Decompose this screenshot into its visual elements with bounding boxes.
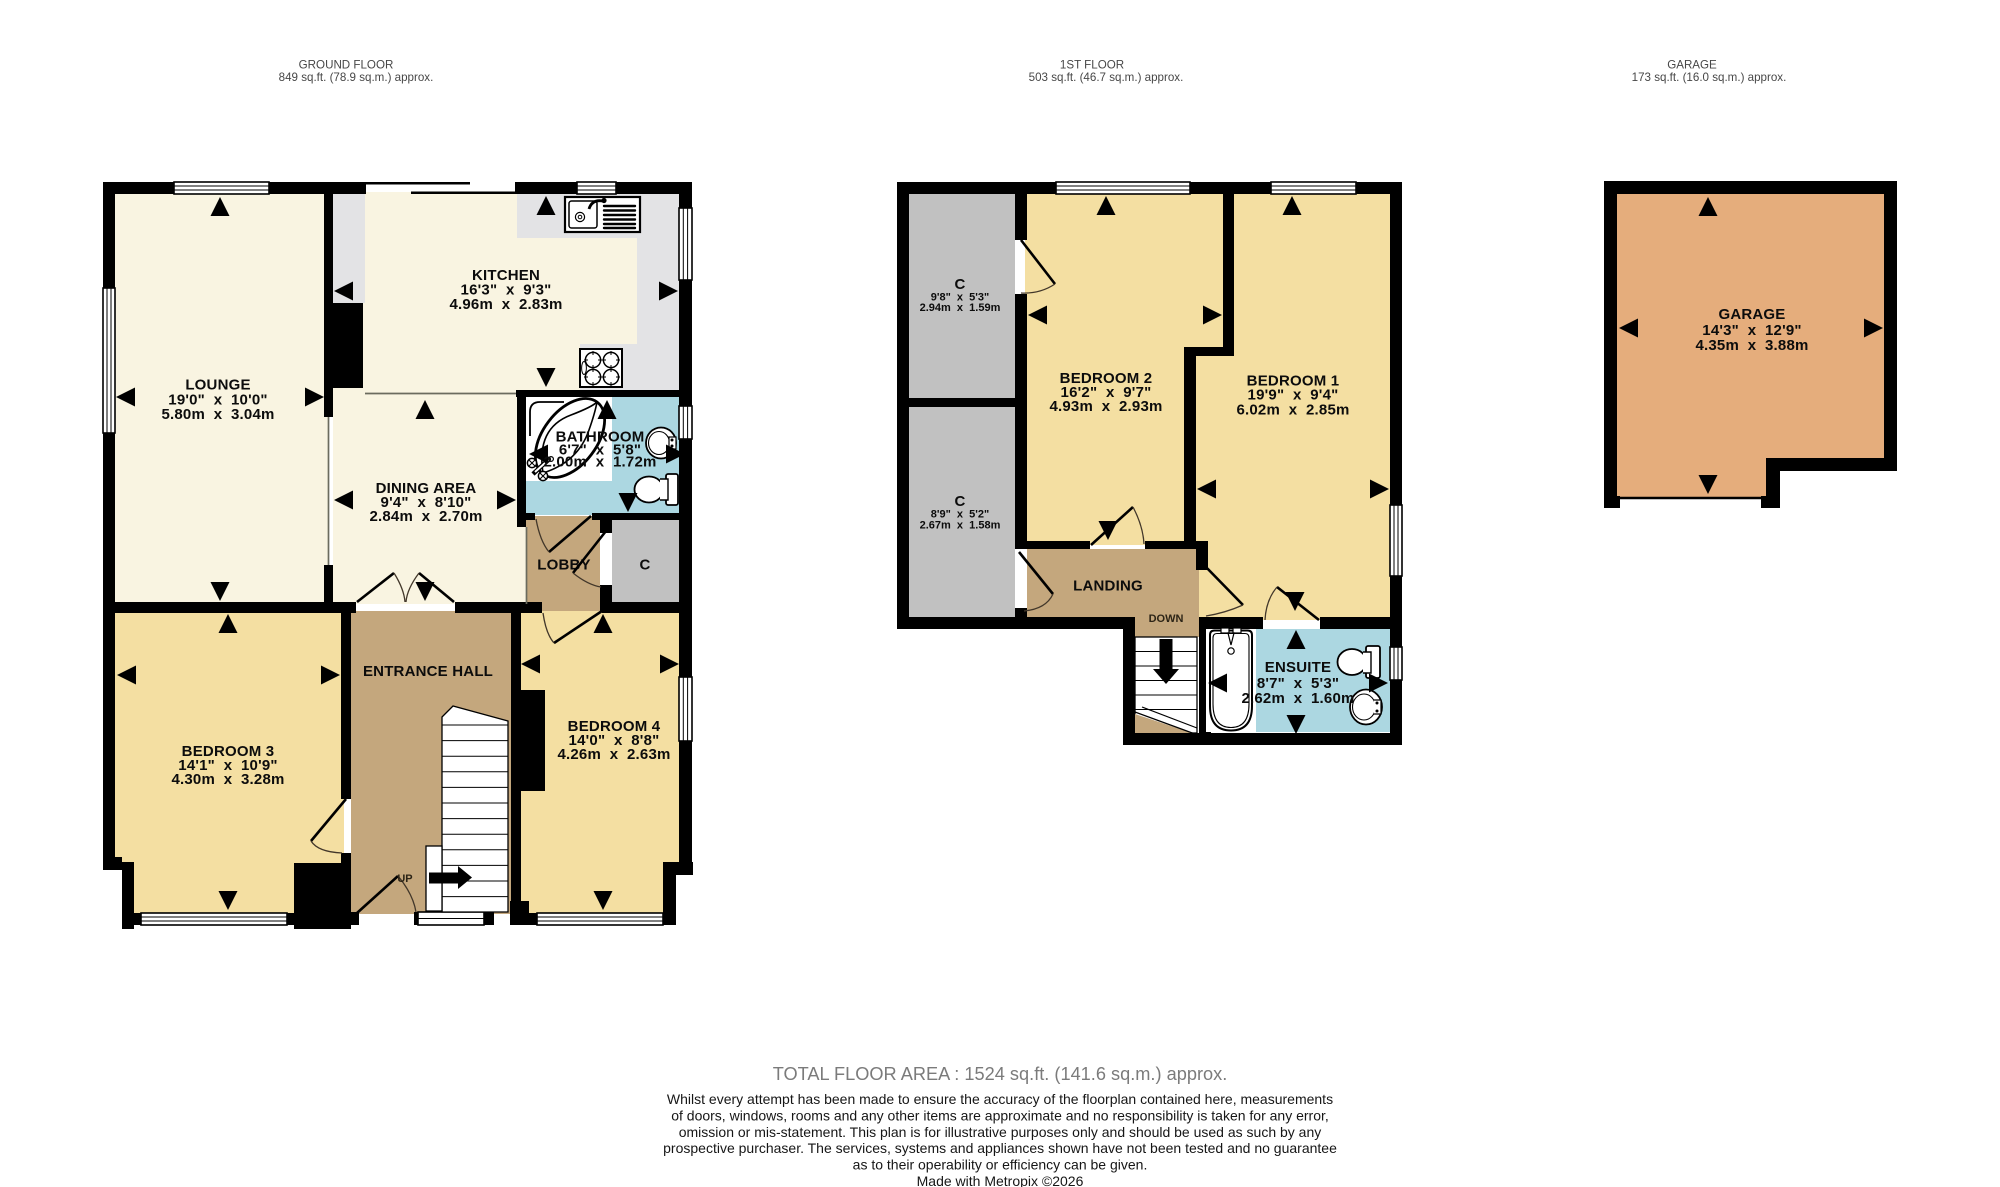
svg-text:Made with Metropix ©2026: Made with Metropix ©2026 xyxy=(917,1173,1084,1187)
svg-text:LANDING: LANDING xyxy=(1073,578,1143,595)
svg-text:prospective purchaser. The ser: prospective purchaser. The services, sys… xyxy=(663,1140,1337,1156)
svg-text:ENSUITE: ENSUITE xyxy=(1265,659,1331,676)
svg-text:DOWN: DOWN xyxy=(1149,613,1184,625)
svg-text:omission or mis-statement. Thi: omission or mis-statement. This plan is … xyxy=(679,1124,1322,1140)
svg-text:2.00m x 1.72m: 2.00m x 1.72m xyxy=(543,454,656,471)
svg-text:2.62m x 1.60m: 2.62m x 1.60m xyxy=(1241,690,1354,707)
svg-text:1ST FLOOR: 1ST FLOOR xyxy=(1060,59,1124,72)
svg-text:4.26m x 2.63m: 4.26m x 2.63m xyxy=(557,746,670,763)
svg-text:4.30m x 3.28m: 4.30m x 3.28m xyxy=(171,771,284,788)
svg-text:503 sq.ft. (46.7 sq.m.) approx: 503 sq.ft. (46.7 sq.m.) approx. xyxy=(1029,71,1184,84)
svg-text:4.96m x 2.83m: 4.96m x 2.83m xyxy=(449,296,562,313)
svg-text:2.84m x 2.70m: 2.84m x 2.70m xyxy=(369,508,482,525)
svg-text:GARAGE: GARAGE xyxy=(1718,306,1785,323)
svg-text:GROUND FLOOR: GROUND FLOOR xyxy=(299,59,394,72)
svg-text:as to their operability or eff: as to their operability or efficiency ca… xyxy=(853,1157,1148,1173)
svg-text:2.94m x 1.59m: 2.94m x 1.59m xyxy=(920,302,1001,314)
svg-text:849 sq.ft. (78.9 sq.m.) approx: 849 sq.ft. (78.9 sq.m.) approx. xyxy=(279,71,434,84)
svg-text:Whilst every attempt has been: Whilst every attempt has been made to en… xyxy=(667,1091,1333,1107)
svg-text:TOTAL FLOOR AREA : 1524 sq.ft.: TOTAL FLOOR AREA : 1524 sq.ft. (141.6 sq… xyxy=(773,1064,1228,1084)
svg-text:4.93m x 2.93m: 4.93m x 2.93m xyxy=(1049,398,1162,415)
svg-text:6.02m x 2.85m: 6.02m x 2.85m xyxy=(1236,402,1349,419)
svg-text:C: C xyxy=(639,557,650,574)
svg-text:C: C xyxy=(954,493,965,510)
svg-text:GARAGE: GARAGE xyxy=(1667,59,1717,72)
svg-text:4.35m x 3.88m: 4.35m x 3.88m xyxy=(1695,337,1808,354)
svg-text:UP: UP xyxy=(397,873,412,885)
svg-text:173 sq.ft. (16.0 sq.m.) approx: 173 sq.ft. (16.0 sq.m.) approx. xyxy=(1632,71,1787,84)
svg-text:C: C xyxy=(954,276,965,293)
svg-text:of doors, windows, rooms and a: of doors, windows, rooms and any other i… xyxy=(671,1107,1329,1123)
svg-text:2.67m x 1.58m: 2.67m x 1.58m xyxy=(920,520,1001,532)
svg-text:ENTRANCE HALL: ENTRANCE HALL xyxy=(363,663,493,680)
svg-text:5.80m x 3.04m: 5.80m x 3.04m xyxy=(161,406,274,423)
